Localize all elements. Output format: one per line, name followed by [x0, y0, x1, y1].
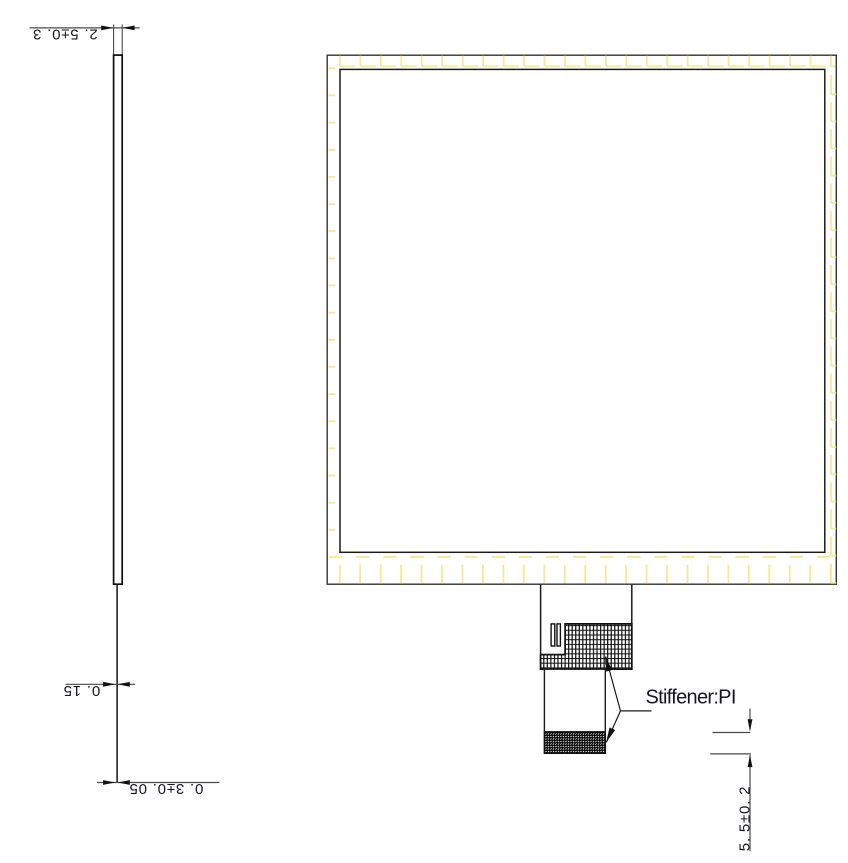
svg-text:0. 3±0. 05: 0. 3±0. 05 [129, 780, 204, 797]
svg-text:Stiffener:PI: Stiffener:PI [646, 686, 736, 708]
svg-text:0. 15: 0. 15 [63, 682, 100, 699]
svg-text:2. 5±0. 3: 2. 5±0. 3 [32, 25, 97, 42]
svg-text:5. 5±0. 2: 5. 5±0. 2 [736, 786, 753, 851]
